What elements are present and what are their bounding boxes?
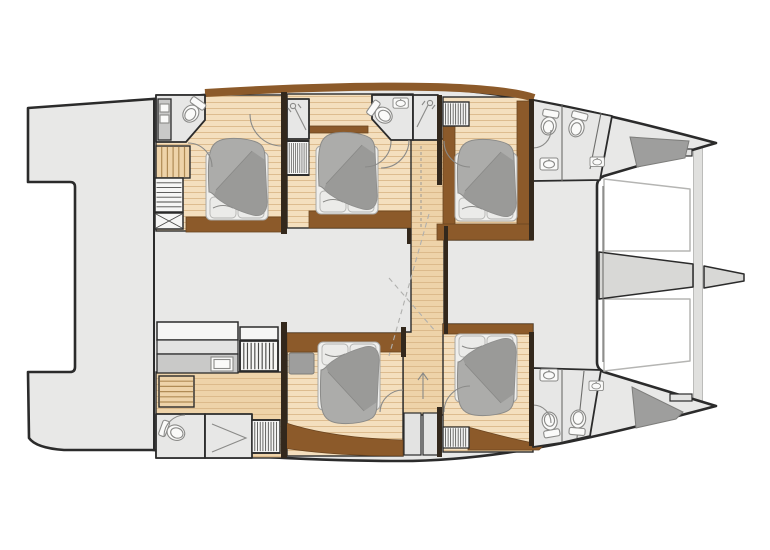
stern-counter [157,354,238,373]
hatch-box [155,213,183,229]
fwd-bed-surround [437,224,533,240]
corridor-panel [404,413,421,455]
corridor-panel [423,413,439,455]
basin [540,158,558,170]
mid-bed-shelf [302,126,368,133]
shelved-wardrobe [155,178,183,212]
forward-cabin-bed [455,139,517,221]
shower-cubicle-mid-cabin [287,99,309,139]
mid-shower [413,95,438,140]
stern-shower [205,414,252,458]
aft-staircase [156,146,190,178]
bow-trampoline-bottom [604,299,690,371]
bowsprit [599,252,693,299]
floor-plan-svg [0,0,770,550]
basin [589,381,603,391]
ottoman [289,353,314,374]
hanging-locker-stern2 [252,420,280,453]
mid-cabin-bed [316,132,378,214]
hanging-locker-corridor [443,102,469,126]
stern-staircase [159,376,194,407]
stern-seat [157,340,238,354]
mid-cabin-bed-stbd [318,342,380,424]
basin [540,369,558,381]
forward-crossbeam [694,146,703,404]
bow-step-bottom [670,394,692,401]
basin [590,157,604,167]
stern-head [156,414,205,458]
bowsprit-tip [704,266,744,288]
fwd-headboard [443,324,533,334]
forward-cabin-bed-stbd [455,334,517,416]
basin [393,98,408,108]
hanging-locker-mid [287,141,309,175]
stern-berth-box [157,322,238,340]
hanging-locker-fwd [443,427,469,448]
hanging-locker-stern [240,341,278,371]
bow-sunpad-port [630,137,689,167]
bow-rigging [694,146,703,404]
bow-trampoline-top [604,179,690,251]
forward-heads-port [533,100,612,181]
fwd-cabin-side-left [443,126,455,240]
aft-cabin-bed [206,138,268,220]
stern-locker [240,327,278,340]
catamaran-floor-plan [0,0,770,550]
